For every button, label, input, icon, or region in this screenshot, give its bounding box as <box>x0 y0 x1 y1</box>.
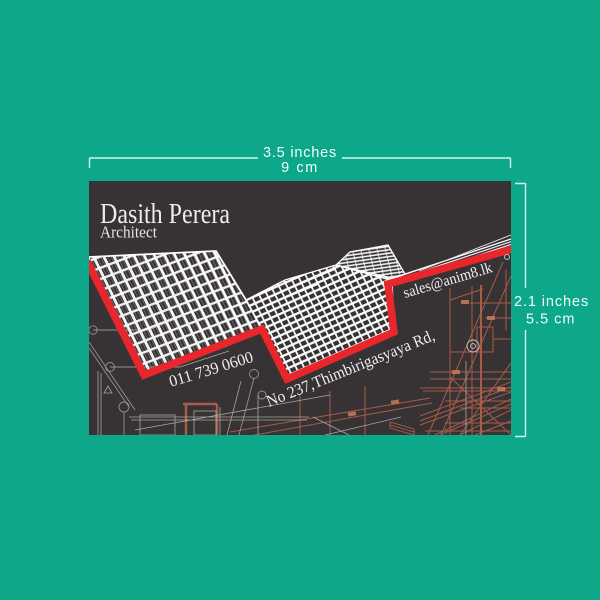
svg-text:3.5 inches: 3.5 inches <box>263 145 337 161</box>
svg-text:2.1 inches: 2.1 inches <box>514 294 589 310</box>
svg-text:9 cm: 9 cm <box>281 160 319 176</box>
svg-text:Architect: Architect <box>100 223 157 242</box>
svg-text:5.5 cm: 5.5 cm <box>526 312 576 328</box>
